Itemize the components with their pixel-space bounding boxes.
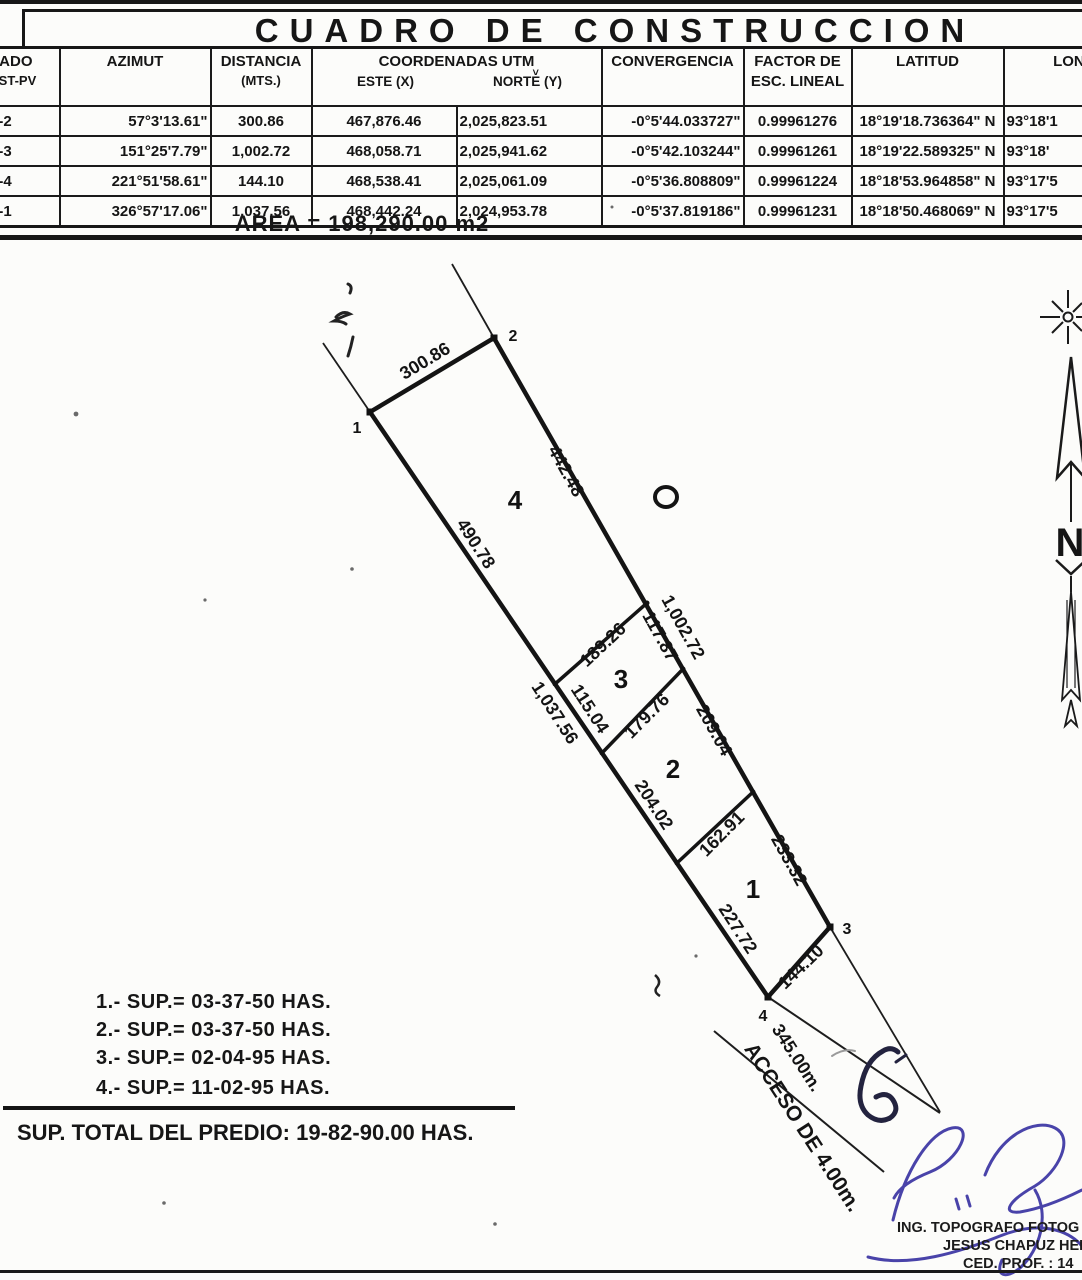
- sheet-bottom-border: [0, 1270, 1082, 1273]
- measurement-label-divider-3-2: 179.76: [620, 689, 673, 742]
- pen-scribbles-top: [334, 284, 353, 356]
- measurement-label-divider-4-3: 189.26: [576, 619, 630, 671]
- extension-lines: [323, 264, 940, 1112]
- lot2-surface-line: 2.- SUP.= 03-37-50 HAS.: [96, 1019, 331, 1042]
- measurement-label-lot1-right: 233.32: [767, 831, 811, 889]
- vertex-label-3: 3: [843, 921, 852, 938]
- vertex-label-4: 4: [759, 1008, 768, 1025]
- handwritten-o-mark: [655, 487, 677, 507]
- scanned-survey-sheet: CUADRO DE CONSTRUCCION LADO EST-PV AZIMU…: [0, 0, 1082, 1280]
- handwritten-g-scribble: [832, 1049, 906, 1121]
- measurement-label-divider-2-1: 162.91: [695, 807, 748, 860]
- north-arrow: N: [1040, 290, 1082, 726]
- lot4-surface-line: 4.- SUP.= 11-02-95 HAS.: [96, 1077, 330, 1100]
- lot-label-3: 3: [614, 664, 628, 694]
- north-star-icon: [1040, 290, 1082, 344]
- parcel-boundary: [370, 338, 830, 997]
- pen-squiggle-bottom: [655, 975, 660, 996]
- lot-label-4: 4: [508, 485, 523, 515]
- surveyor-title-line: ING. TOPOGRAFO FOTOG: [897, 1220, 1079, 1236]
- vertex-label-1: 1: [353, 420, 362, 437]
- measurement-label-lot4-right: 442.48: [544, 442, 588, 500]
- summary-divider-rule: [3, 1106, 515, 1110]
- north-letter: N: [1056, 521, 1082, 565]
- vertex-markers: [367, 335, 834, 1001]
- vertex-label-2: 2: [509, 328, 518, 345]
- measurement-label-lot2-right: 209.04: [692, 701, 736, 759]
- lot-label-2: 2: [666, 754, 680, 784]
- lot3-surface-line: 3.- SUP.= 02-04-95 HAS.: [96, 1047, 331, 1070]
- lot1-surface-line: 1.- SUP.= 03-37-50 HAS.: [96, 991, 331, 1014]
- measurement-label-bottom: 144.10: [774, 940, 828, 993]
- total-surface-line: SUP. TOTAL DEL PREDIO: 19-82-90.00 HAS.: [17, 1120, 473, 1146]
- lot-label-1: 1: [746, 874, 760, 904]
- surveyor-name-line: JESUS CHAPUZ HER: [943, 1238, 1082, 1254]
